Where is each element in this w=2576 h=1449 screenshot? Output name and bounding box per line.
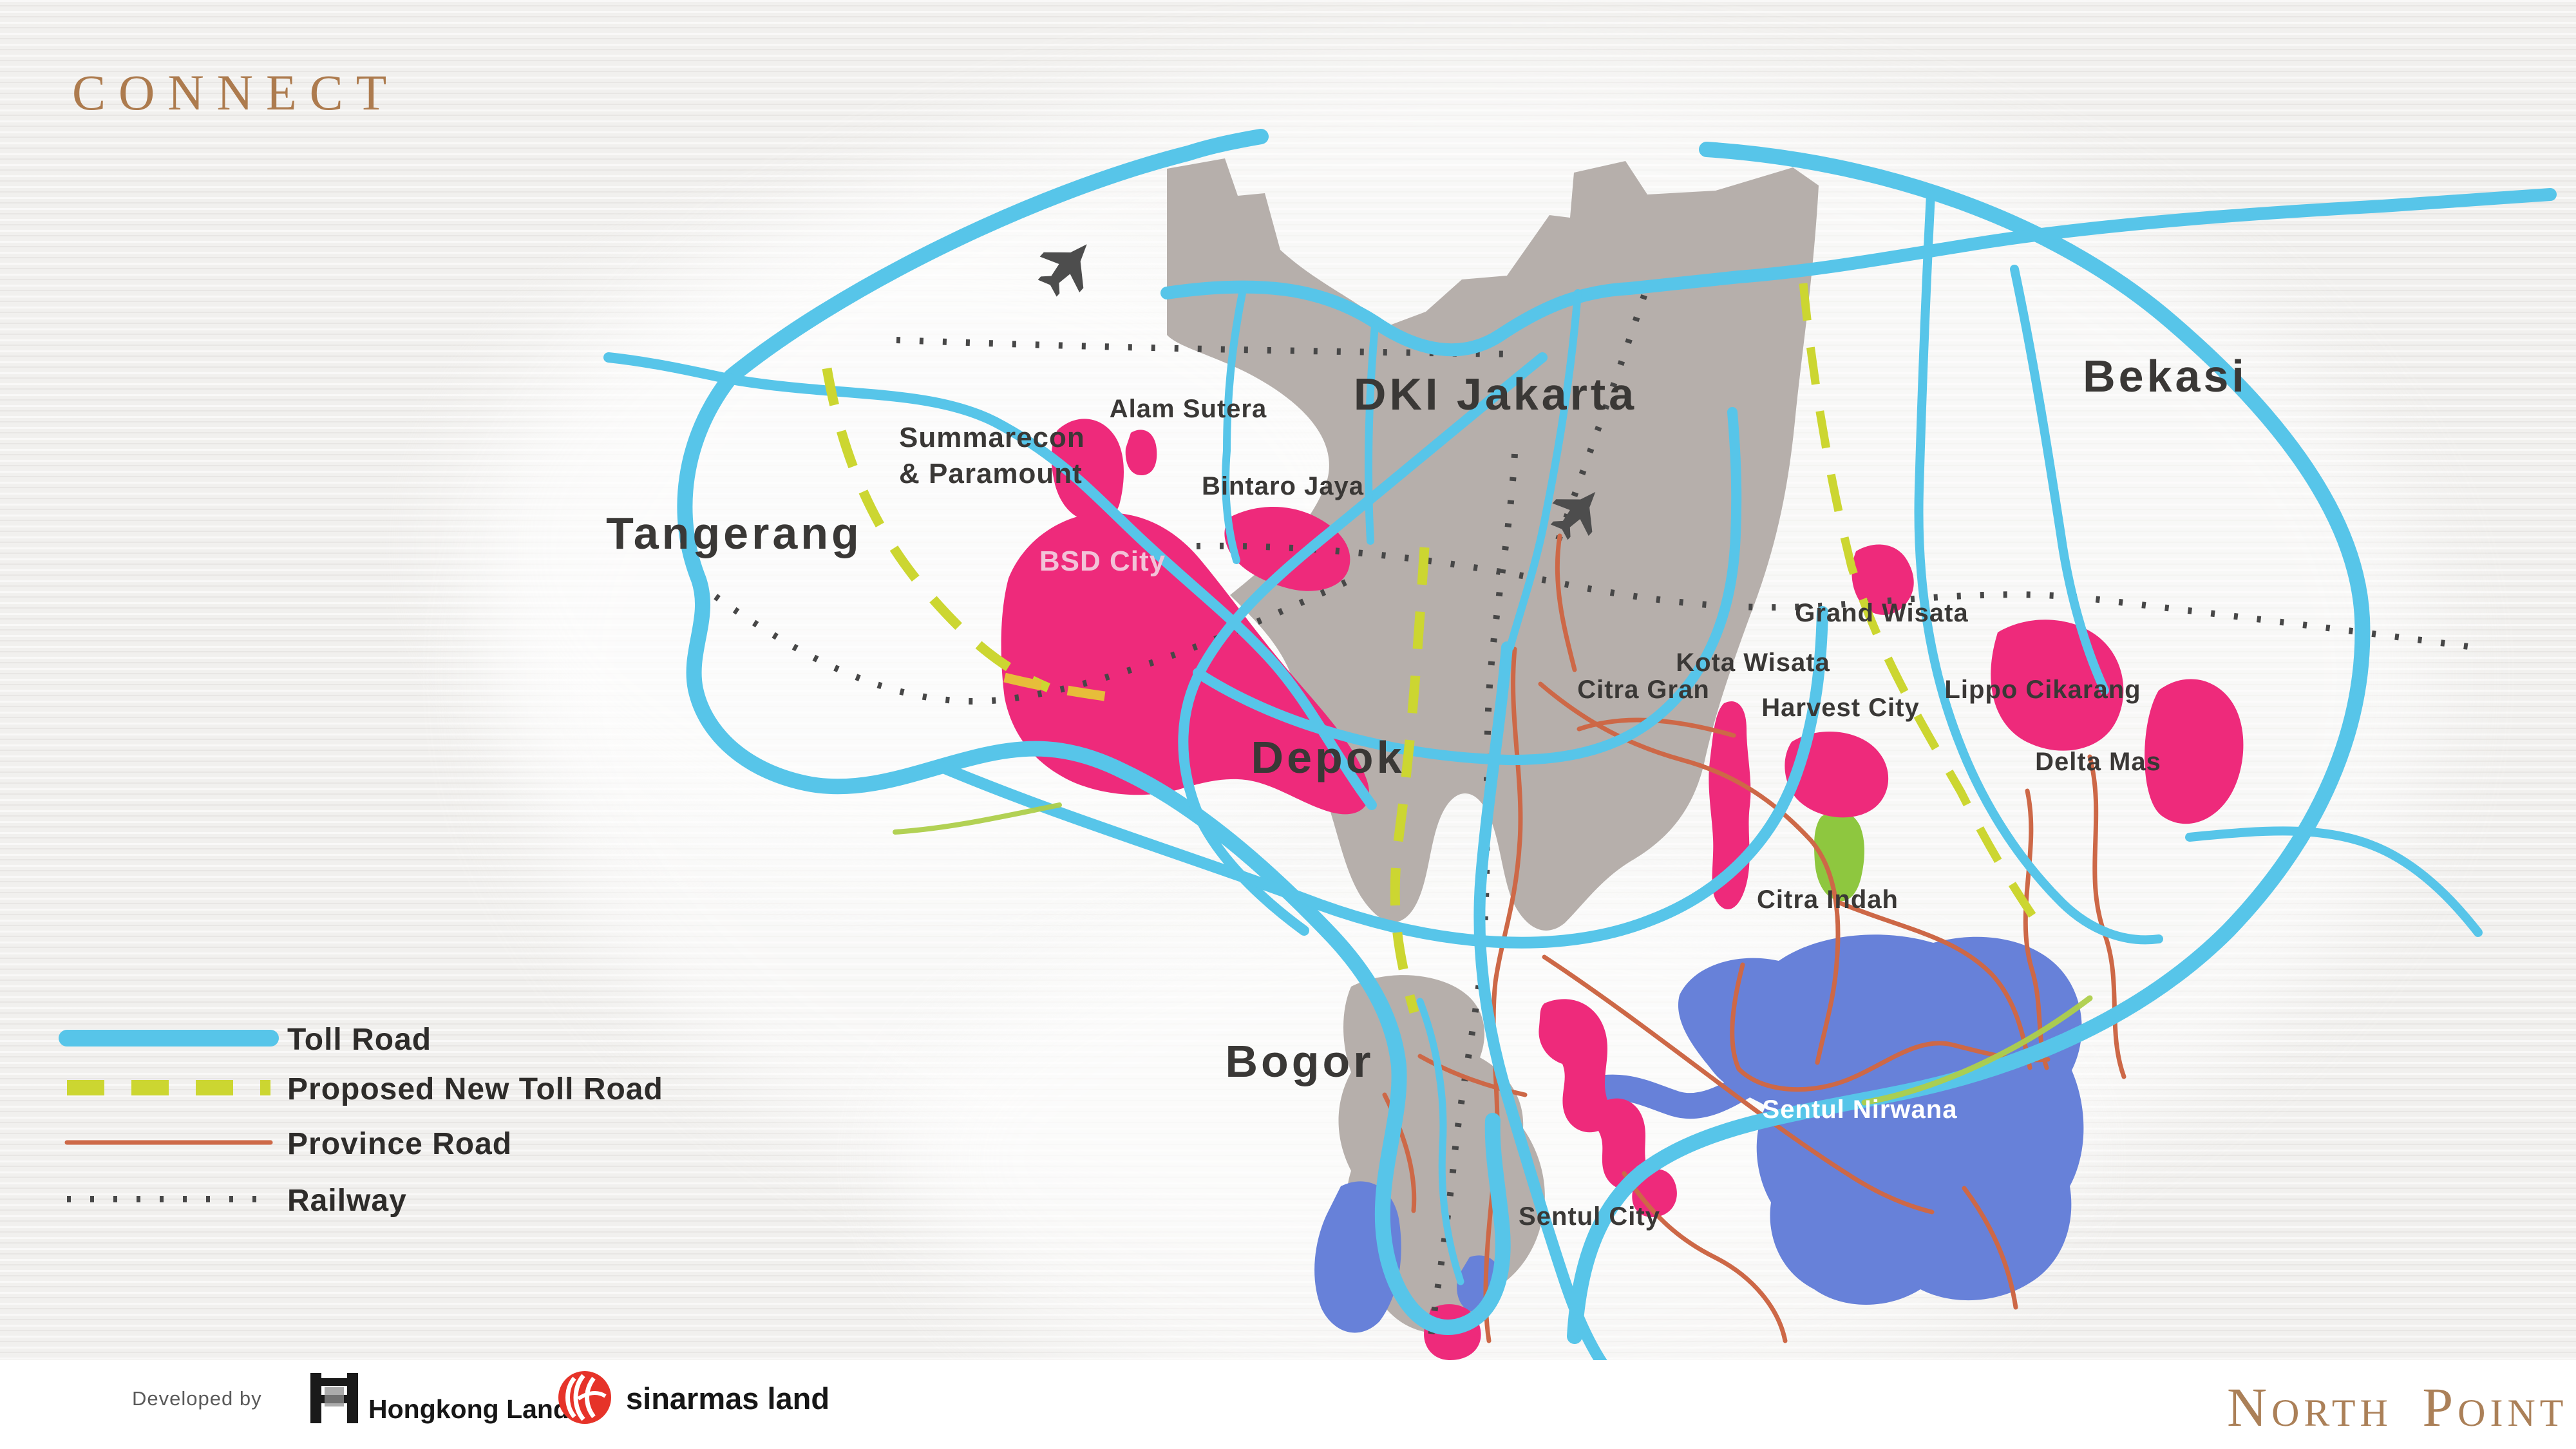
legend-province-road-label: Province Road xyxy=(287,1127,512,1161)
legend: Toll Road Proposed New Toll Road Provinc… xyxy=(67,1023,663,1218)
label-bogor: Bogor xyxy=(1225,1036,1374,1086)
label-dki-jakarta: DKI Jakarta xyxy=(1354,369,1637,419)
footer: Developed by Hongkong Land sinarmas land… xyxy=(0,1360,2576,1449)
sinarmas-land-logo-icon xyxy=(558,1371,611,1424)
label-bekasi: Bekasi xyxy=(2083,351,2248,401)
north-point-brand: North Point xyxy=(2227,1376,2568,1438)
legend-toll-road-label: Toll Road xyxy=(287,1023,431,1057)
jabodetabek-connectivity-map: Tangerang DKI Jakarta Bekasi Depok Bogor… xyxy=(0,0,2576,1449)
label-depok: Depok xyxy=(1251,732,1405,782)
label-paramount: & Paramount xyxy=(899,458,1083,489)
label-tangerang: Tangerang xyxy=(606,508,862,558)
label-sentul-city: Sentul City xyxy=(1519,1202,1660,1231)
label-alam-sutera: Alam Sutera xyxy=(1110,395,1267,423)
label-harvest-city: Harvest City xyxy=(1761,694,1919,722)
label-bintaro-jaya: Bintaro Jaya xyxy=(1202,472,1364,500)
legend-proposed-toll-label: Proposed New Toll Road xyxy=(287,1072,663,1106)
label-grand-wisata: Grand Wisata xyxy=(1795,599,1968,627)
page-title: CONNECT xyxy=(72,64,399,120)
label-lippo-cikarang: Lippo Cikarang xyxy=(1944,676,2141,704)
developed-by-label: Developed by xyxy=(132,1387,262,1410)
label-delta-mas: Delta Mas xyxy=(2035,748,2161,776)
hongkong-land-label: Hongkong Land xyxy=(368,1394,569,1424)
legend-railway-label: Railway xyxy=(287,1184,407,1218)
label-citra-indah: Citra Indah xyxy=(1757,885,1899,914)
region-alam-sutera xyxy=(1126,430,1157,475)
label-bsd-city: BSD City xyxy=(1039,545,1166,577)
sinarmas-land-label: sinarmas land xyxy=(626,1381,829,1416)
label-kota-wisata: Kota Wisata xyxy=(1676,649,1830,677)
label-summarecon: Summarecon xyxy=(899,422,1085,453)
label-citra-gran: Citra Gran xyxy=(1577,676,1710,704)
label-sentul-nirwana: Sentul Nirwana xyxy=(1763,1095,1958,1124)
slide-connect: Tangerang DKI Jakarta Bekasi Depok Bogor… xyxy=(0,0,2576,1449)
